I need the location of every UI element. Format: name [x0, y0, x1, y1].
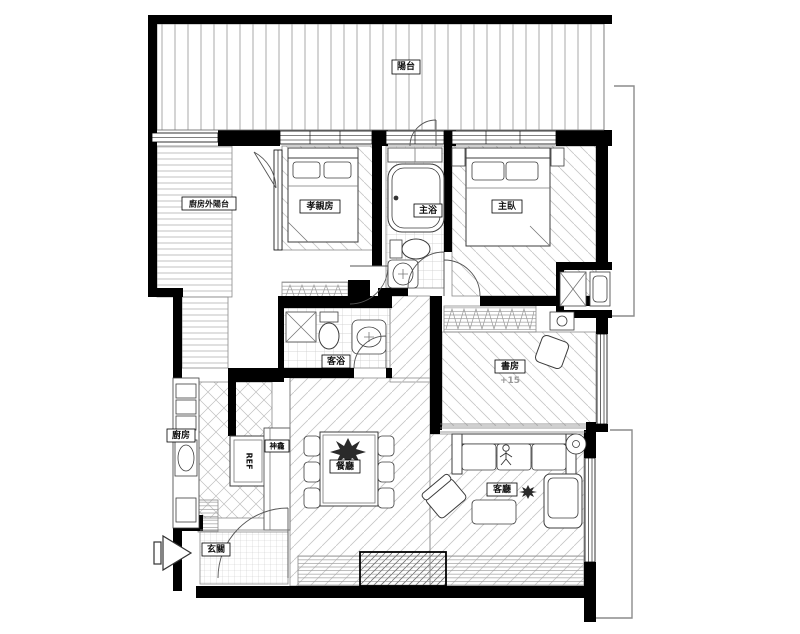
- bathtub: [388, 164, 444, 232]
- label-shrine-cabinet: 神龕: [265, 440, 289, 452]
- guest-toilet: [319, 312, 339, 349]
- wall-bedroom-south-a: [480, 296, 536, 306]
- wall-guest-bath-south-b: [386, 368, 392, 378]
- nightstand-left: [452, 148, 465, 166]
- door-outer-balcony-open: [254, 152, 276, 188]
- label-master-bedroom: 主臥: [492, 200, 522, 213]
- pillow: [506, 162, 538, 180]
- wall-guest-bath-north: [282, 296, 392, 308]
- dining-chair: [304, 436, 320, 456]
- kitchen-label: 廚房: [172, 429, 190, 441]
- living-room-label: 客廳: [492, 483, 511, 495]
- exterior-line-lower: [596, 430, 632, 618]
- appliance-box: [176, 416, 196, 430]
- sofa-cushion: [462, 444, 496, 470]
- floor-plan-canvas: REF: [0, 0, 800, 634]
- wall-right-living-lower: [584, 562, 596, 622]
- label-parents-room: 孝親房: [300, 200, 340, 213]
- wall-kitchen-mid: [228, 368, 236, 436]
- sofa: [452, 434, 576, 474]
- shrine-cabinet-label: 神龕: [270, 441, 285, 451]
- wall-left-step: [148, 288, 183, 297]
- window-study-east: [597, 334, 607, 424]
- master-toilet: [390, 239, 430, 259]
- sliding-door-cap-left: [430, 422, 440, 434]
- ac-unit-box-2: [590, 272, 610, 306]
- sofa-cushion: [497, 444, 531, 470]
- sofa-back: [462, 434, 566, 444]
- ac-unit-box: [560, 272, 586, 306]
- corridor-floor: [390, 296, 430, 382]
- window-master-bath: [386, 131, 444, 144]
- entry-floor: [200, 532, 288, 584]
- appliance-box: [176, 384, 196, 398]
- dining-chair: [378, 462, 394, 482]
- guest-bath-label: 客浴: [326, 355, 346, 367]
- refrigerator-box: REF: [230, 436, 266, 486]
- refrigerator-label: REF: [245, 452, 254, 469]
- label-entry: 玄關: [202, 543, 230, 556]
- window-parents-west: [274, 150, 282, 250]
- master-bed: [466, 148, 550, 246]
- dining-chair: [378, 436, 394, 456]
- sofa-cushion: [532, 444, 566, 470]
- side-table-lamp: [566, 434, 586, 454]
- wall-bath-south-a: [378, 288, 408, 296]
- nightstand-right: [551, 148, 564, 166]
- wall-bottom: [196, 586, 586, 598]
- kitchen-sink: [178, 445, 194, 471]
- window-balcony-left: [152, 133, 218, 142]
- wall-left-upper: [148, 15, 157, 297]
- parents-bed: [288, 148, 358, 242]
- balcony-label: 陽台: [397, 60, 415, 72]
- study-floor-level-label: +15: [500, 376, 520, 386]
- dining-chair: [304, 462, 320, 482]
- coffee-table: [472, 500, 516, 524]
- tub-drain: [394, 196, 399, 201]
- label-master-bath: 主浴: [414, 204, 442, 217]
- wall-hall-post: [348, 280, 370, 296]
- study-label: 書房: [501, 360, 519, 372]
- outer-balcony-floor-lower: [182, 297, 228, 368]
- wall-balcony-pillar-left: [218, 130, 280, 146]
- wall-right-bedroom: [596, 130, 608, 270]
- window-parents-room: [280, 131, 372, 144]
- label-kitchen: 廚房: [167, 429, 195, 442]
- label-dining-room: 餐廳: [330, 460, 360, 473]
- wall-guest-bath-south-a: [282, 368, 354, 378]
- wall-kitchen-north: [228, 368, 284, 382]
- window-master-bedroom: [452, 131, 556, 144]
- dining-chair: [378, 488, 394, 508]
- base-cabinet: [176, 498, 196, 522]
- sliding-door-cap-right: [586, 422, 596, 434]
- parents-room-label: 孝親房: [305, 200, 333, 212]
- kitchen-counter: [173, 378, 199, 528]
- master-bedroom-label: 主臥: [498, 200, 517, 212]
- label-outer-balcony: 廚房外陽台: [182, 197, 236, 210]
- wall-guest-bath-west: [278, 296, 284, 370]
- label-guest-bath: 客浴: [322, 355, 350, 368]
- laundry-unit: [286, 312, 316, 342]
- pillow: [324, 162, 351, 178]
- wall-bath-bedroom: [444, 146, 452, 252]
- dining-chair: [304, 488, 320, 508]
- wall-right-study-lower: [596, 424, 608, 432]
- master-bath-label: 主浴: [419, 204, 438, 216]
- guest-sink: [352, 320, 386, 354]
- chaise-lounge: [544, 474, 582, 528]
- outer-balcony-floor: [157, 146, 232, 297]
- bath-shelf: [388, 148, 442, 162]
- wall-balcony-pillar-right: [556, 130, 612, 146]
- wall-right-study-upper: [596, 318, 608, 334]
- window-living-east: [585, 458, 595, 562]
- master-sink: [388, 260, 418, 288]
- study-side-unit: [550, 312, 574, 330]
- wall-top: [148, 15, 612, 24]
- balcony-floor: [157, 24, 604, 130]
- floor-plan-svg: REF: [0, 0, 800, 634]
- appliance-box: [176, 400, 196, 414]
- pillow: [472, 162, 504, 180]
- exterior-line-upper: [612, 86, 634, 316]
- entry-arrow-icon: [154, 536, 191, 570]
- outer-balcony-label: 廚房外陽台: [189, 199, 229, 209]
- tv-cabinet-hatched-box: [360, 552, 446, 586]
- wall-parents-bath: [372, 146, 382, 266]
- label-living-room: 客廳: [487, 483, 517, 496]
- wall-ac-niche-top: [556, 262, 612, 270]
- entry-label: 玄關: [207, 543, 225, 555]
- label-balcony: 陽台: [392, 60, 420, 74]
- dining-room-label: 餐廳: [335, 460, 354, 472]
- sofa-armrest: [452, 434, 462, 474]
- wall-study-west: [430, 296, 442, 430]
- pillow: [293, 162, 320, 178]
